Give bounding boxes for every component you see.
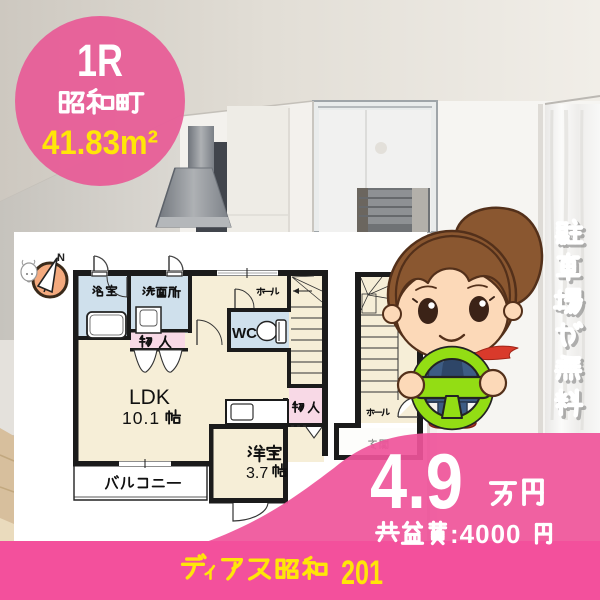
svg-text:3.7: 3.7 <box>246 465 268 482</box>
svg-text:LDK: LDK <box>129 386 170 409</box>
svg-text:4.9: 4.9 <box>370 437 463 525</box>
svg-text:201: 201 <box>341 554 383 592</box>
svg-text:41.83m²: 41.83m² <box>42 124 158 162</box>
svg-text:10.1: 10.1 <box>122 408 160 428</box>
svg-text:WC: WC <box>232 325 257 342</box>
svg-text:N: N <box>57 252 65 264</box>
svg-text:1R: 1R <box>77 35 123 86</box>
svg-text::4000: :4000 <box>450 519 522 549</box>
